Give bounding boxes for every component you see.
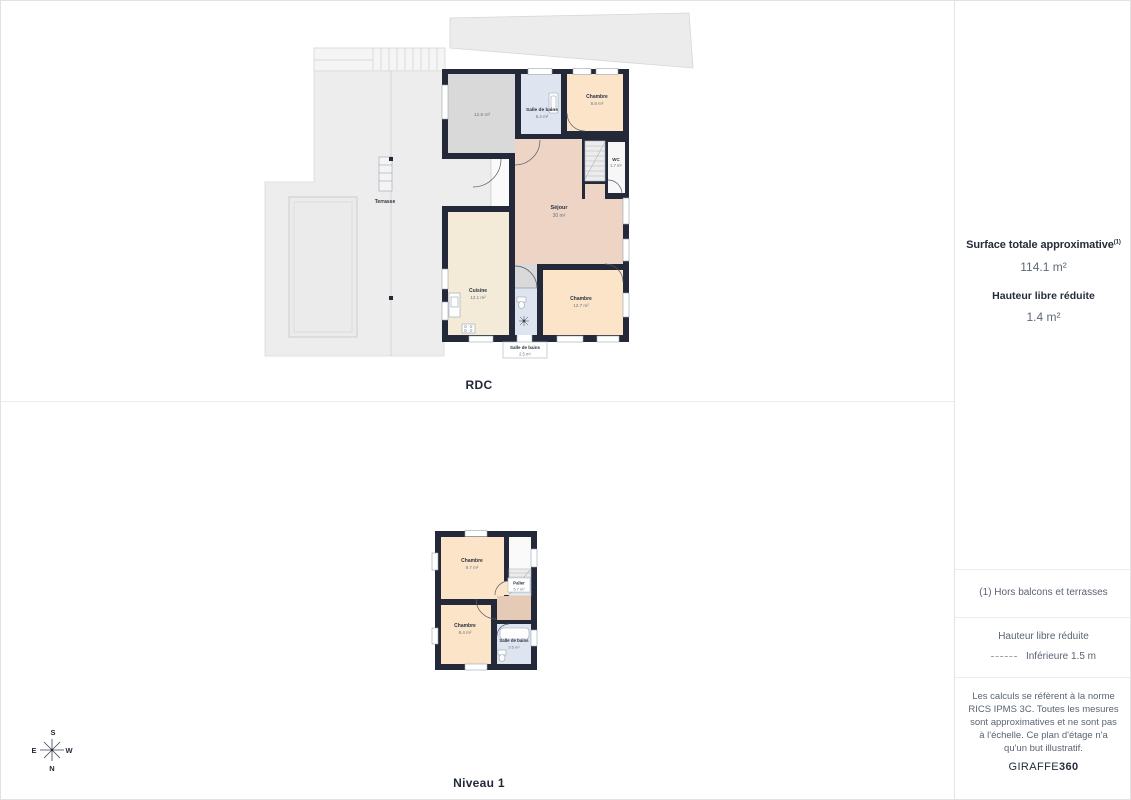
surface-total-value: 114.1 m² [955, 260, 1131, 274]
floor-plan-page: Terrasse 12.5 m² Salle de bains 6.4 m² C… [0, 0, 1131, 800]
rdc-upper-balcony [450, 13, 693, 68]
terrasse-deck [289, 197, 357, 337]
summary-sidebar: Surface totale approximative(1) 114.1 m²… [954, 1, 1131, 800]
rdc-stairs-wc-block [582, 137, 629, 199]
sidebar-divider-2 [955, 617, 1131, 618]
n1-stair-void [509, 537, 531, 569]
rdc-exterior-stairs [314, 48, 445, 71]
legend-row: Inférieure 1.5 m [955, 651, 1131, 662]
palier-callout: Palier 5.7 m² [508, 578, 530, 592]
sdb1-name-label: Salle de bains [526, 107, 558, 113]
sdb2-callout: Salle de bains 2.5 m² [503, 342, 547, 358]
cuisine-name-label: Cuisine [469, 288, 487, 294]
n1-chambre1-area-label: 9.7 m² [466, 565, 479, 570]
compass-west: W [65, 746, 73, 755]
palier-name-label: Palier [513, 581, 525, 586]
n1-chambre2-area-label: 8.4 m² [459, 630, 472, 635]
rdc-terrasse [265, 71, 444, 356]
terrasse-label: Terrasse [375, 199, 396, 205]
n1-chambre1-name-label: Chambre [461, 558, 483, 564]
sdb1-area-label: 6.4 m² [536, 114, 549, 119]
compass-south: S [50, 728, 55, 737]
terrasse-ladder [379, 157, 392, 191]
rdc-sdb2-door-gap [517, 335, 532, 342]
footnote-text: (1) Hors balcons et terrasses [955, 587, 1131, 598]
surface-total-title: Surface totale approximative(1) [955, 239, 1131, 251]
n1-chambre2-name-label: Chambre [454, 623, 476, 629]
hauteur-reduite-title: Hauteur libre réduite [955, 290, 1131, 302]
chambre2-area-label: 12.7 m² [573, 303, 589, 308]
sdb2-area-label: 2.5 m² [519, 352, 531, 357]
brand-bold: 360 [1059, 761, 1079, 773]
giraffe360-logo: GIRAFFE360 [955, 761, 1131, 773]
brand-regular: GIRAFFE [1008, 761, 1058, 773]
legend-block: Hauteur libre réduite Inférieure 1.5 m [955, 631, 1131, 662]
sdb2-name-label: Salle de bains [510, 345, 541, 350]
surface-summary: Surface totale approximative(1) 114.1 m²… [955, 239, 1131, 324]
chambre1-name-label: Chambre [586, 94, 608, 100]
n1-sdb-name-label: Salle de bains [499, 638, 529, 643]
surface-footnote-marker: (1) [1114, 239, 1121, 245]
rdc-floor-label: RDC [466, 378, 493, 392]
compass-north: N [49, 764, 54, 773]
plans-area: Terrasse 12.5 m² Salle de bains 6.4 m² C… [1, 1, 954, 800]
niveau1-floor-label: Niveau 1 [453, 776, 505, 790]
rdc-plan: Terrasse 12.5 m² Salle de bains 6.4 m² C… [1, 1, 954, 401]
n1-sdb-area-label: 3.6 m² [508, 645, 520, 650]
rdc-terrasse-notch [439, 159, 491, 206]
disclaimer-text: Les calculs se réfèrent à la norme RICS … [955, 690, 1131, 756]
n1-room-palier [497, 596, 531, 620]
wc-area-label: 1.7 m² [610, 163, 622, 168]
sidebar-divider-3 [955, 677, 1131, 678]
chambre2-name-label: Chambre [570, 296, 592, 302]
niveau1-plan: Palier 5.7 m² Chambre 9.7 m² Chambre 8.4… [1, 402, 954, 800]
sejour-area-label: 30 m² [553, 213, 566, 219]
palier-area-label: 5.7 m² [513, 587, 525, 592]
compass-east: E [31, 746, 36, 755]
chambre1-area-label: 8.8 m² [591, 101, 604, 106]
hauteur-reduite-value: 1.4 m² [955, 310, 1131, 324]
floor-section-rdc: Terrasse 12.5 m² Salle de bains 6.4 m² C… [1, 1, 954, 402]
dashed-line-icon [991, 656, 1017, 657]
legend-title: Hauteur libre réduite [955, 631, 1131, 642]
rdc-room-salle-de-bains-2 [515, 288, 537, 335]
wc-name-label: WC [612, 157, 620, 162]
floor-section-niveau1: Palier 5.7 m² Chambre 9.7 m² Chambre 8.4… [1, 402, 954, 800]
compass-icon: S N E W [31, 728, 73, 773]
sejour-name-label: Séjour [550, 205, 568, 211]
legend-item-text: Inférieure 1.5 m [1026, 651, 1096, 662]
cuisine-area-label: 12.1 m² [470, 295, 486, 300]
sidebar-divider-1 [955, 569, 1131, 570]
garage-area-label: 12.5 m² [474, 112, 491, 118]
